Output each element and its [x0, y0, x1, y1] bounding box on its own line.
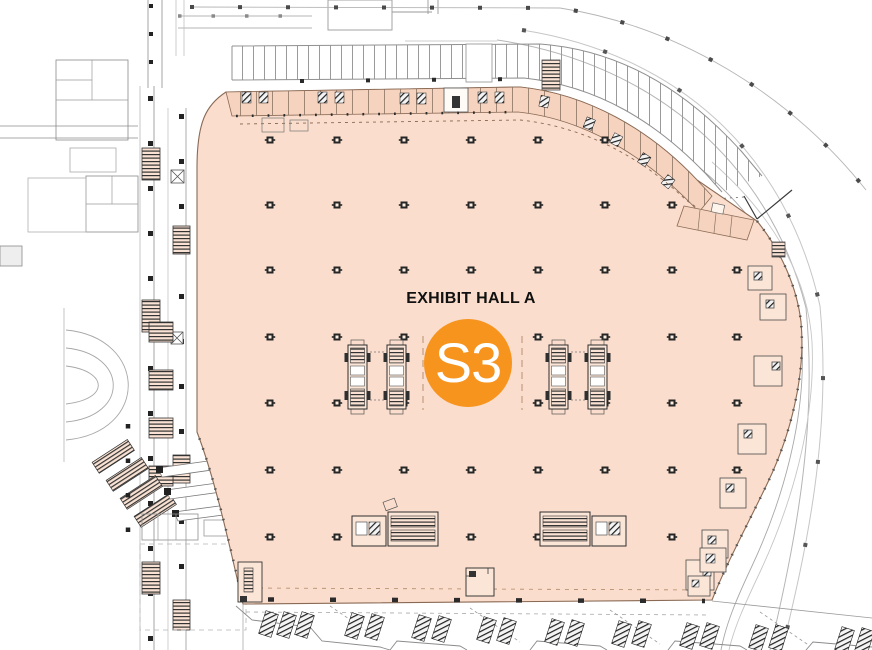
floorplan-stage: EXHIBIT HALL A S3 [0, 0, 872, 650]
ramp-oval [64, 308, 128, 462]
escalator-bank-south-east [540, 512, 626, 546]
hall-label: EXHIBIT HALL A [406, 290, 536, 307]
loading-docks-south [236, 601, 872, 650]
floorplan-svg: EXHIBIT HALL A S3 [0, 0, 872, 650]
stand-badge[interactable]: S3 [424, 319, 512, 407]
stand-badge-label: S3 [435, 331, 502, 394]
